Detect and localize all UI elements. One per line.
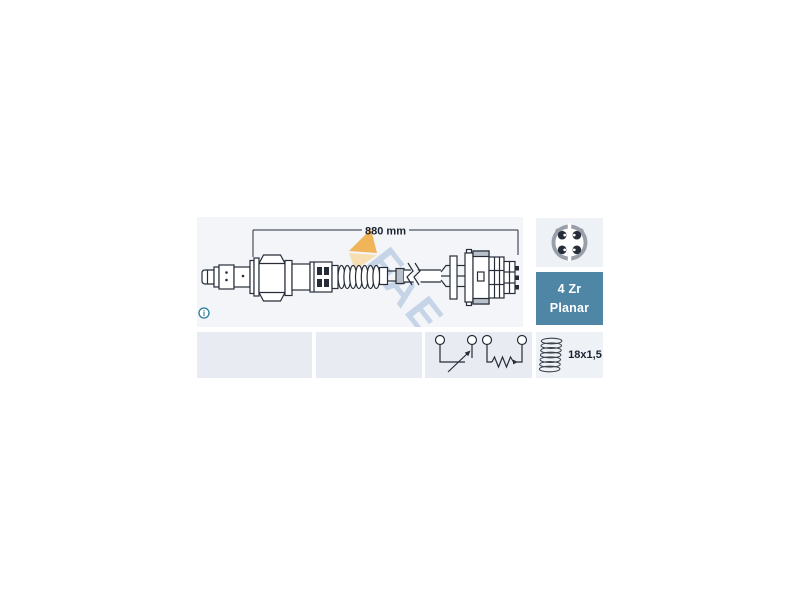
empty-cell-1: [197, 332, 312, 378]
sensor-cell-and-heater-circuit-icon: [425, 332, 532, 378]
wiring-schematic-panel: [425, 332, 532, 378]
thread-coil-icon: [537, 336, 565, 374]
heater-circuit: [483, 336, 527, 368]
sensor-body: [202, 255, 310, 301]
dimension-label: 880 mm: [365, 226, 406, 238]
lambda-sensor-drawing: FAE 880 mm: [197, 217, 523, 327]
bellows-sleeve: [338, 266, 380, 289]
sensor-type-badge: 4 Zr Planar: [536, 272, 603, 325]
sensor-drawing-panel: FAE 880 mm: [197, 217, 523, 327]
connector-face-panel: [536, 218, 603, 267]
sensor-cell-circuit: [436, 336, 477, 373]
info-icon: i: [198, 307, 210, 319]
hex-nut: [259, 255, 285, 301]
thread-size-label: 18x1,5: [568, 349, 602, 361]
product-image: FAE 880 mm: [0, 0, 800, 600]
connector-plug: [450, 250, 519, 306]
badge-line1: 4 Zr: [558, 280, 582, 298]
thread-size-panel: 18x1,5: [536, 332, 603, 378]
badge-line2: Planar: [550, 299, 589, 317]
empty-cell-2: [316, 332, 422, 378]
info-glyph: i: [203, 309, 205, 318]
connector-face-icon: [547, 220, 592, 265]
